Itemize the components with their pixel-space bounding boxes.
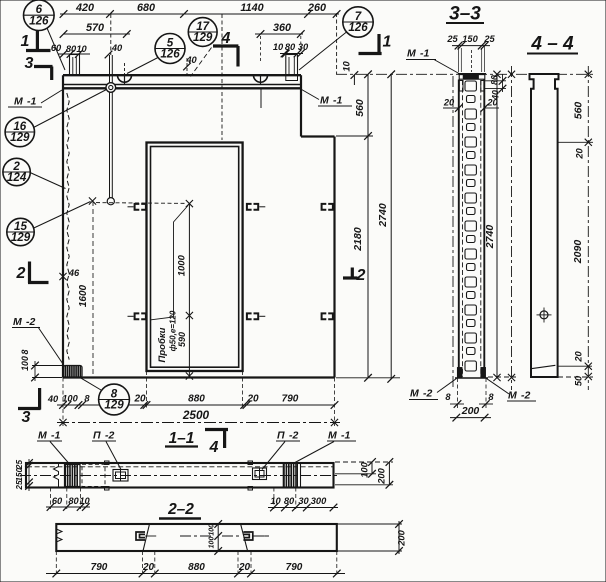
svg-text:25: 25 <box>483 34 495 44</box>
svg-text:-2: -2 <box>105 430 114 442</box>
svg-text:8: 8 <box>488 392 494 402</box>
svg-text:М: М <box>407 48 416 60</box>
svg-text:880: 880 <box>188 394 205 405</box>
svg-text:40: 40 <box>47 394 59 404</box>
svg-text:20: 20 <box>142 562 155 573</box>
svg-text:126: 126 <box>29 14 49 27</box>
svg-text:8: 8 <box>445 392 451 402</box>
svg-text:8: 8 <box>84 394 90 404</box>
svg-text:3: 3 <box>22 409 31 426</box>
svg-text:200: 200 <box>397 529 407 546</box>
svg-text:4: 4 <box>221 30 231 47</box>
svg-text:10: 10 <box>79 496 90 506</box>
svg-text:80: 80 <box>285 42 296 52</box>
svg-text:Пробки: Пробки <box>157 327 168 362</box>
svg-text:420: 420 <box>75 2 94 14</box>
svg-text:590: 590 <box>177 332 187 347</box>
svg-text:150: 150 <box>15 468 24 482</box>
svg-text:-1: -1 <box>27 96 36 108</box>
svg-text:25: 25 <box>446 34 458 44</box>
svg-text:20: 20 <box>575 148 585 160</box>
svg-text:-2: -2 <box>26 316 35 328</box>
svg-text:2740: 2740 <box>484 225 496 250</box>
svg-text:-1: -1 <box>420 48 429 60</box>
svg-text:2–2: 2–2 <box>167 501 194 518</box>
svg-text:560: 560 <box>354 99 366 117</box>
svg-text:25: 25 <box>15 480 24 491</box>
svg-text:40: 40 <box>111 43 123 53</box>
svg-text:ф50,е=120: ф50,е=120 <box>169 310 178 351</box>
svg-text:М: М <box>38 430 47 442</box>
svg-text:1140: 1140 <box>240 2 263 14</box>
svg-text:30: 30 <box>298 496 309 506</box>
svg-text:30: 30 <box>298 42 309 52</box>
svg-text:100: 100 <box>209 524 216 536</box>
svg-text:60: 60 <box>52 496 63 506</box>
svg-text:124: 124 <box>7 171 27 184</box>
svg-text:80: 80 <box>66 44 77 54</box>
svg-text:129: 129 <box>10 131 30 144</box>
svg-text:129: 129 <box>193 31 213 44</box>
svg-text:150: 150 <box>462 34 478 44</box>
svg-text:40: 40 <box>185 55 197 65</box>
svg-text:3–3: 3–3 <box>449 4 481 25</box>
svg-text:1: 1 <box>383 34 392 51</box>
svg-text:10: 10 <box>342 61 352 72</box>
svg-text:-1: -1 <box>51 430 60 442</box>
svg-text:1600: 1600 <box>78 284 89 307</box>
svg-text:2740: 2740 <box>377 203 389 228</box>
svg-text:2: 2 <box>16 265 26 282</box>
svg-text:М: М <box>320 95 329 107</box>
svg-text:4 – 4: 4 – 4 <box>530 34 574 55</box>
svg-text:М: М <box>410 388 419 400</box>
svg-text:-1: -1 <box>341 430 350 442</box>
svg-text:П: П <box>277 430 285 442</box>
svg-text:200: 200 <box>377 467 387 484</box>
svg-text:300: 300 <box>311 496 327 506</box>
svg-text:20: 20 <box>246 394 259 405</box>
svg-text:260: 260 <box>307 2 326 14</box>
svg-text:790: 790 <box>282 394 299 405</box>
svg-text:129: 129 <box>11 231 31 244</box>
svg-text:-1: -1 <box>333 95 342 107</box>
svg-text:П: П <box>93 430 101 442</box>
svg-text:2090: 2090 <box>572 240 584 265</box>
svg-text:10: 10 <box>270 496 281 506</box>
svg-text:100: 100 <box>20 356 30 371</box>
svg-text:80: 80 <box>68 496 79 506</box>
svg-text:1–1: 1–1 <box>169 430 195 447</box>
svg-text:1: 1 <box>21 33 30 50</box>
svg-text:20: 20 <box>574 351 584 363</box>
svg-text:126: 126 <box>348 21 368 34</box>
svg-text:М: М <box>14 96 23 108</box>
svg-text:1000: 1000 <box>176 254 187 276</box>
svg-text:46: 46 <box>68 268 80 278</box>
svg-text:680: 680 <box>137 2 155 14</box>
svg-text:10: 10 <box>273 42 284 52</box>
svg-text:100: 100 <box>360 461 370 477</box>
svg-text:560: 560 <box>573 102 585 120</box>
svg-text:М: М <box>508 390 517 402</box>
svg-text:20: 20 <box>133 394 146 405</box>
svg-text:790: 790 <box>91 562 108 573</box>
svg-text:8: 8 <box>20 349 30 354</box>
svg-text:2500: 2500 <box>182 408 210 422</box>
svg-text:200: 200 <box>461 405 480 417</box>
svg-text:-2: -2 <box>423 388 432 400</box>
svg-text:60: 60 <box>51 43 62 53</box>
svg-text:100: 100 <box>62 394 78 404</box>
svg-text:790: 790 <box>286 562 303 573</box>
svg-text:М: М <box>328 430 337 442</box>
svg-text:-2: -2 <box>289 430 298 442</box>
svg-text:2180: 2180 <box>352 227 364 252</box>
svg-text:80: 80 <box>284 496 295 506</box>
svg-text:4: 4 <box>209 439 219 456</box>
svg-text:880: 880 <box>188 562 205 573</box>
svg-text:20: 20 <box>238 562 251 573</box>
svg-text:100: 100 <box>209 537 216 549</box>
svg-text:М: М <box>13 316 22 328</box>
svg-text:126: 126 <box>160 48 180 61</box>
svg-text:570: 570 <box>86 22 104 34</box>
svg-text:-2: -2 <box>521 390 530 402</box>
svg-text:129: 129 <box>104 399 124 412</box>
svg-text:3: 3 <box>25 55 34 72</box>
svg-text:10: 10 <box>76 44 87 54</box>
svg-text:2: 2 <box>356 267 366 284</box>
svg-text:360: 360 <box>273 22 291 34</box>
